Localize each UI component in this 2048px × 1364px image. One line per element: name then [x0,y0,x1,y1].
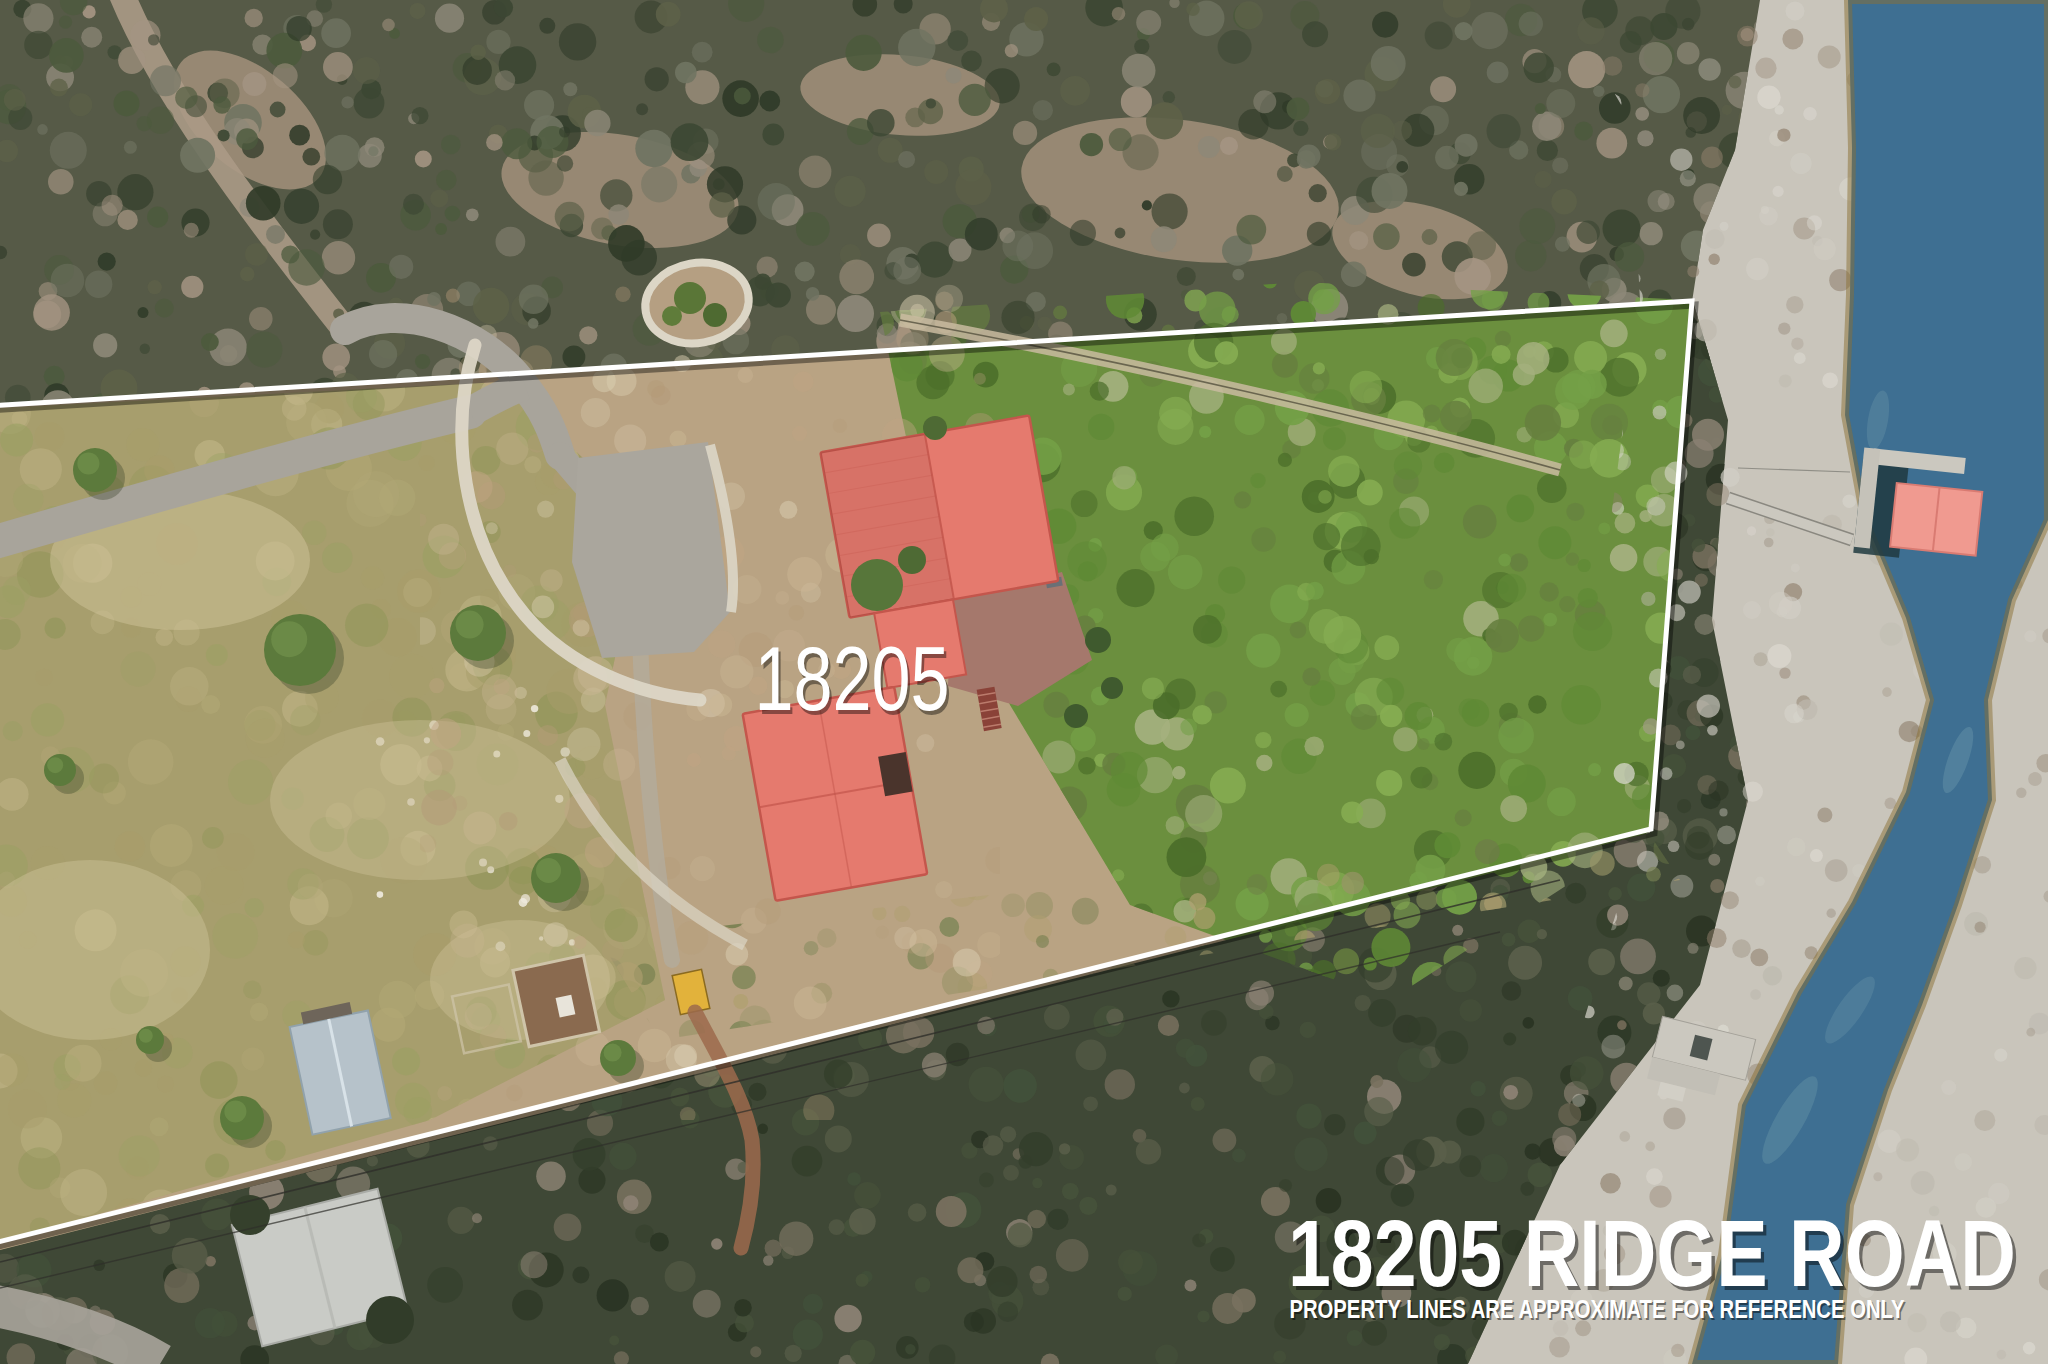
texture-blob [1825,859,1848,882]
texture-blob [117,210,137,230]
texture-blob [138,307,149,318]
texture-blob [795,262,815,282]
texture-blob [1342,872,1364,894]
texture-blob [1601,1035,1625,1059]
texture-blob [450,924,484,958]
tree-highlight [536,858,561,883]
texture-blob [1121,86,1152,117]
texture-blob [1323,427,1346,450]
texture-blob [1151,226,1177,252]
texture-blob [1908,1313,1927,1332]
texture-blob [1198,136,1220,158]
texture-blob [1192,705,1212,725]
texture-blob [1112,7,1126,21]
texture-blob [779,1222,813,1256]
texture-blob [49,38,84,73]
texture-blob [284,189,319,224]
texture-blob [608,225,645,262]
texture-blob [1455,22,1473,40]
texture-blob [1376,1157,1405,1186]
texture-blob [496,227,526,257]
texture-blob [1475,839,1500,864]
tree-highlight [271,621,307,657]
texture-blob [974,373,986,385]
texture-blob [1677,799,1691,813]
texture-blob [1503,1085,1518,1100]
texture-blob [245,243,268,266]
address-title: 18205 RIDGE ROAD [1288,1201,2016,1306]
texture-blob [1535,103,1546,114]
texture-blob [1343,80,1375,112]
texture-blob [1528,695,1546,713]
texture-blob [1047,1209,1068,1230]
texture-blob [1705,229,1725,249]
texture-blob [1136,10,1161,35]
texture-blob [1784,704,1804,724]
texture-blob [2028,772,2042,786]
texture-blob [1446,961,1477,992]
texture-blob [806,287,820,301]
texture-blob [1038,316,1052,330]
texture-blob [1487,114,1521,148]
texture-blob [955,169,991,205]
texture-blob [1637,130,1653,146]
texture-blob [597,1279,629,1311]
tree-highlight [456,611,484,639]
texture-blob [623,1195,638,1210]
texture-blob [692,42,713,63]
texture-blob [1588,763,1601,776]
texture-blob [1279,1179,1292,1192]
texture-blob [856,1274,869,1287]
texture-blob [750,1346,761,1357]
texture-blob [1896,1139,1919,1162]
texture-blob [250,1003,268,1021]
texture-blob [1106,1185,1117,1196]
texture-blob [524,90,554,120]
texture-blob [202,827,224,849]
texture-blob [521,894,530,903]
texture-blob [392,1047,420,1075]
texture-blob [1355,995,1371,1011]
texture-blob [1719,808,1727,816]
texture-blob [1650,13,1677,40]
texture-blob [557,155,573,171]
texture-blob [427,292,441,306]
texture-blob [184,223,199,238]
texture-blob [1873,1172,1882,1181]
texture-blob [1002,231,1033,262]
texture-blob [310,230,320,240]
texture-blob [1036,935,1049,948]
texture-blob [1458,752,1495,789]
texture-blob [148,34,159,45]
texture-blob [1253,90,1276,113]
texture-blob [1566,553,1579,566]
texture-blob [427,1267,463,1303]
texture-blob [1761,206,1769,214]
texture-blob [1573,612,1612,651]
texture-blob [763,1255,773,1265]
texture-blob [1140,542,1170,572]
texture-blob [1372,12,1398,38]
texture-blob [1698,58,1720,80]
texture-blob [987,1266,1018,1297]
texture-blob [792,426,807,441]
texture-blob [1455,809,1472,826]
texture-blob [1000,1126,1016,1142]
texture-blob [1347,1330,1363,1346]
texture-blob [1277,166,1293,182]
texture-blob [1842,494,1856,508]
texture-blob [1778,322,1790,334]
texture-blob [403,194,424,215]
texture-blob [555,202,585,232]
texture-blob [711,1238,722,1249]
texture-blob [563,346,586,369]
texture-blob [236,128,258,150]
texture-blob [1599,92,1631,124]
texture-blob [1142,677,1164,699]
texture-blob [602,940,624,962]
texture-blob [389,654,434,699]
texture-blob [323,52,353,82]
texture-blob [1561,685,1601,725]
texture-blob [1524,53,1554,83]
texture-blob [759,91,780,112]
texture-blob [1341,801,1363,823]
texture-blob [1318,490,1332,504]
texture-blob [1459,999,1482,1022]
texture-blob [1232,1149,1246,1163]
texture-blob [1436,339,1473,376]
texture-blob [1435,1031,1468,1064]
texture-blob [1543,613,1557,627]
texture-blob [1146,102,1183,139]
texture-blob [1423,405,1441,423]
texture-blob [1523,1017,1535,1029]
texture-blob [1822,373,1838,389]
texture-blob [1692,538,1706,552]
texture-blob [1067,541,1106,580]
texture-blob [1232,1289,1256,1313]
texture-blob [1277,313,1288,324]
texture-blob [1803,107,1817,121]
texture-blob [1588,948,1615,975]
texture-blob [1287,97,1310,120]
texture-blob [1213,1128,1237,1152]
texture-blob [1185,1280,1197,1292]
texture-blob [785,1345,802,1362]
texture-blob [1215,341,1238,364]
texture-blob [1380,705,1402,727]
texture-blob [486,134,503,151]
texture-blob [1547,787,1576,816]
texture-blob [1497,574,1526,603]
texture-blob [1234,491,1251,508]
texture-blob [1519,12,1543,36]
texture-blob [1467,231,1496,260]
texture-blob [1596,128,1627,159]
texture-blob [470,45,486,61]
texture-blob [1655,349,1666,360]
texture-blob [540,569,563,592]
texture-blob [965,218,998,251]
texture-blob [1694,614,1715,635]
texture-blob [135,1060,152,1077]
texture-blob [1600,320,1628,348]
texture-blob [245,9,263,27]
texture-blob [1166,816,1185,835]
texture-blob [175,87,197,109]
texture-blob [1598,523,1610,535]
texture-blob [833,419,847,433]
texture-blob [573,619,590,636]
aerial-photo-canvas: 18205 18205 18205 RIDGE ROAD 18205 RIDGE… [0,0,2048,1364]
texture-blob [1235,1,1263,29]
texture-blob [945,68,961,84]
texture-blob [1685,832,1713,860]
texture-blob [536,1162,566,1192]
texture-blob [1080,133,1103,156]
texture-blob [353,57,380,84]
texture-blob [894,906,910,922]
texture-blob [8,1090,47,1129]
texture-blob [419,455,435,471]
texture-blob [1525,404,1561,440]
texture-blob [573,1138,606,1171]
texture-blob [1270,681,1287,698]
texture-blob [93,333,117,357]
texture-blob [435,223,447,235]
texture-blob [218,129,230,141]
texture-blob [286,16,311,41]
texture-blob [1568,51,1605,88]
texture-blob [531,705,538,712]
texture-blob [732,966,756,990]
pasture-patch [270,720,570,880]
texture-blob [1882,687,1892,697]
texture-blob [397,569,440,612]
texture-blob [1191,1097,1205,1111]
texture-blob [85,271,112,298]
texture-blob [1911,1171,1935,1195]
deck-bush [1101,677,1123,699]
texture-blob [867,224,891,248]
texture-blob [368,146,378,156]
texture-blob [1549,1337,1570,1358]
texture-blob [1574,341,1607,374]
garden-tree [662,306,682,326]
texture-blob [4,89,26,111]
texture-blob [102,195,123,216]
texture-blob [1047,63,1061,77]
texture-blob [1782,28,1803,49]
texture-blob [1302,668,1320,686]
texture-blob [1003,1069,1037,1103]
texture-blob [228,760,273,805]
texture-blob [118,47,145,74]
texture-blob [1285,703,1309,727]
texture-blob [1810,849,1823,862]
texture-blob [1393,727,1417,751]
texture-blob [543,922,568,947]
texture-blob [486,694,517,725]
texture-blob [495,70,515,90]
deck-bush [1085,627,1111,653]
texture-blob [205,1153,229,1177]
texture-blob [1685,725,1700,740]
texture-blob [1033,100,1053,120]
texture-blob [894,927,916,949]
texture-blob [1535,171,1552,188]
texture-blob [603,749,635,781]
texture-blob [379,981,417,1019]
texture-blob [804,941,819,956]
texture-blob [1118,1287,1132,1301]
texture-blob [1787,838,1806,857]
texture-blob [961,51,982,72]
texture-blob [1394,452,1422,480]
texture-blob [1701,147,1723,169]
texture-blob [559,126,570,137]
texture-blob [1697,694,1720,717]
texture-blob [23,3,53,33]
texture-blob [382,19,395,32]
property-number: 18205 [754,629,949,729]
texture-blob [1112,466,1136,490]
texture-blob [36,669,53,686]
texture-blob [1940,1311,1961,1332]
texture-blob [1372,173,1408,209]
texture-blob [1515,240,1546,271]
texture-blob [748,1083,766,1101]
texture-blob [1296,1103,1321,1128]
texture-blob [1350,371,1383,404]
texture-blob [1294,1138,1327,1171]
texture-blob [567,728,600,761]
texture-blob [1540,582,1559,601]
texture-blob [1192,1234,1206,1248]
texture-blob [1708,854,1720,866]
texture-blob [1313,362,1325,374]
texture-blob [650,1233,669,1252]
texture-blob [720,655,753,688]
texture-blob [574,936,587,949]
texture-blob [1201,1010,1227,1036]
tree-over-shed [366,1296,414,1344]
texture-blob [758,183,795,220]
texture-blob [1197,1310,1209,1322]
tree-highlight [77,452,99,474]
texture-blob [1235,405,1265,435]
texture-blob [1368,999,1396,1027]
texture-blob [898,29,935,66]
texture-blob [421,790,457,826]
texture-blob [1062,1183,1079,1200]
texture-blob [1551,189,1577,215]
texture-blob [377,891,384,898]
texture-blob [693,1290,721,1318]
texture-blob [1302,21,1328,47]
texture-blob [1593,86,1604,97]
texture-blob [1658,193,1675,210]
texture-blob [1746,258,1769,281]
texture-blob [1653,970,1670,987]
texture-blob [708,631,735,658]
texture-blob [1600,1173,1621,1194]
texture-blob [1487,62,1509,84]
texture-blob [1163,91,1175,103]
texture-blob [1610,544,1638,572]
texture-blob [1707,725,1718,736]
texture-blob [1060,76,1090,106]
texture-blob [1247,874,1268,895]
texture-blob [1537,140,1558,161]
yard-tree [851,559,903,611]
texture-blob [1425,22,1453,50]
texture-blob [709,693,732,716]
texture-blob [1293,121,1308,136]
texture-blob [1743,601,1761,619]
texture-blob [59,16,72,29]
texture-blob [1471,12,1508,49]
texture-blob [1324,1114,1345,1135]
texture-blob [506,1085,522,1101]
texture-blob [1307,222,1331,246]
texture-blob [1167,837,1207,877]
texture-blob [1090,382,1109,401]
texture-blob [288,931,305,948]
texture-blob [1435,146,1459,170]
texture-blob [1236,215,1266,245]
texture-blob [935,285,963,313]
texture-blob [150,1117,169,1136]
texture-blob [98,253,116,271]
texture-blob [3,721,23,741]
texture-blob [1508,946,1542,980]
texture-blob [148,280,162,294]
texture-blob [2023,1342,2036,1355]
texture-blob [1032,1178,1042,1188]
texture-blob [1779,374,1792,387]
texture-blob [270,102,286,118]
texture-blob [1370,1075,1383,1088]
texture-blob [147,207,168,228]
texture-blob [1324,133,1341,150]
texture-blob [1480,1154,1508,1182]
texture-blob [418,835,436,853]
texture-blob [427,749,453,775]
texture-blob [917,242,953,278]
texture-blob [524,456,541,473]
texture-blob [1232,269,1244,281]
texture-blob [115,831,145,861]
texture-blob [922,1053,947,1078]
texture-blob [835,176,866,207]
texture-blob [246,186,281,221]
texture-blob [1272,352,1298,378]
texture-blob [94,1071,118,1095]
texture-blob [793,1320,823,1350]
texture-blob [181,276,203,298]
texture-blob [1574,122,1593,141]
texture-blob [448,1207,475,1234]
texture-blob [1687,265,1699,277]
texture-blob [1220,137,1238,155]
texture-blob [1485,619,1519,653]
texture-blob [1392,120,1412,140]
